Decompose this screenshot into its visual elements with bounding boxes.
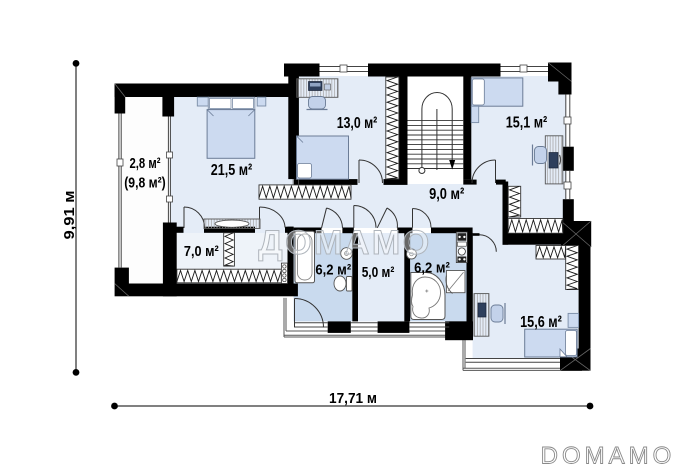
svg-text:15,1 м²: 15,1 м² (506, 115, 548, 132)
svg-text:15,6 м²: 15,6 м² (520, 314, 562, 331)
svg-text:5,0 м²: 5,0 м² (362, 264, 395, 281)
svg-text:2,8 м²: 2,8 м² (130, 155, 161, 172)
svg-text:6,2 м²: 6,2 м² (315, 262, 351, 279)
svg-text:9,91 м: 9,91 м (61, 191, 78, 240)
svg-text:7,0 м²: 7,0 м² (184, 243, 219, 260)
svg-text:9,0 м²: 9,0 м² (429, 186, 464, 203)
svg-text:DOMAMO: DOMAMO (541, 443, 676, 470)
svg-text:ДОМАМО: ДОМАМО (258, 224, 431, 262)
svg-text:6,2 м²: 6,2 м² (414, 260, 450, 277)
svg-text:17,71 м: 17,71 м (329, 390, 377, 407)
svg-text:13,0 м²: 13,0 м² (337, 115, 378, 132)
svg-text:(9,8 м²): (9,8 м²) (124, 175, 166, 192)
svg-text:21,5 м²: 21,5 м² (211, 162, 253, 179)
